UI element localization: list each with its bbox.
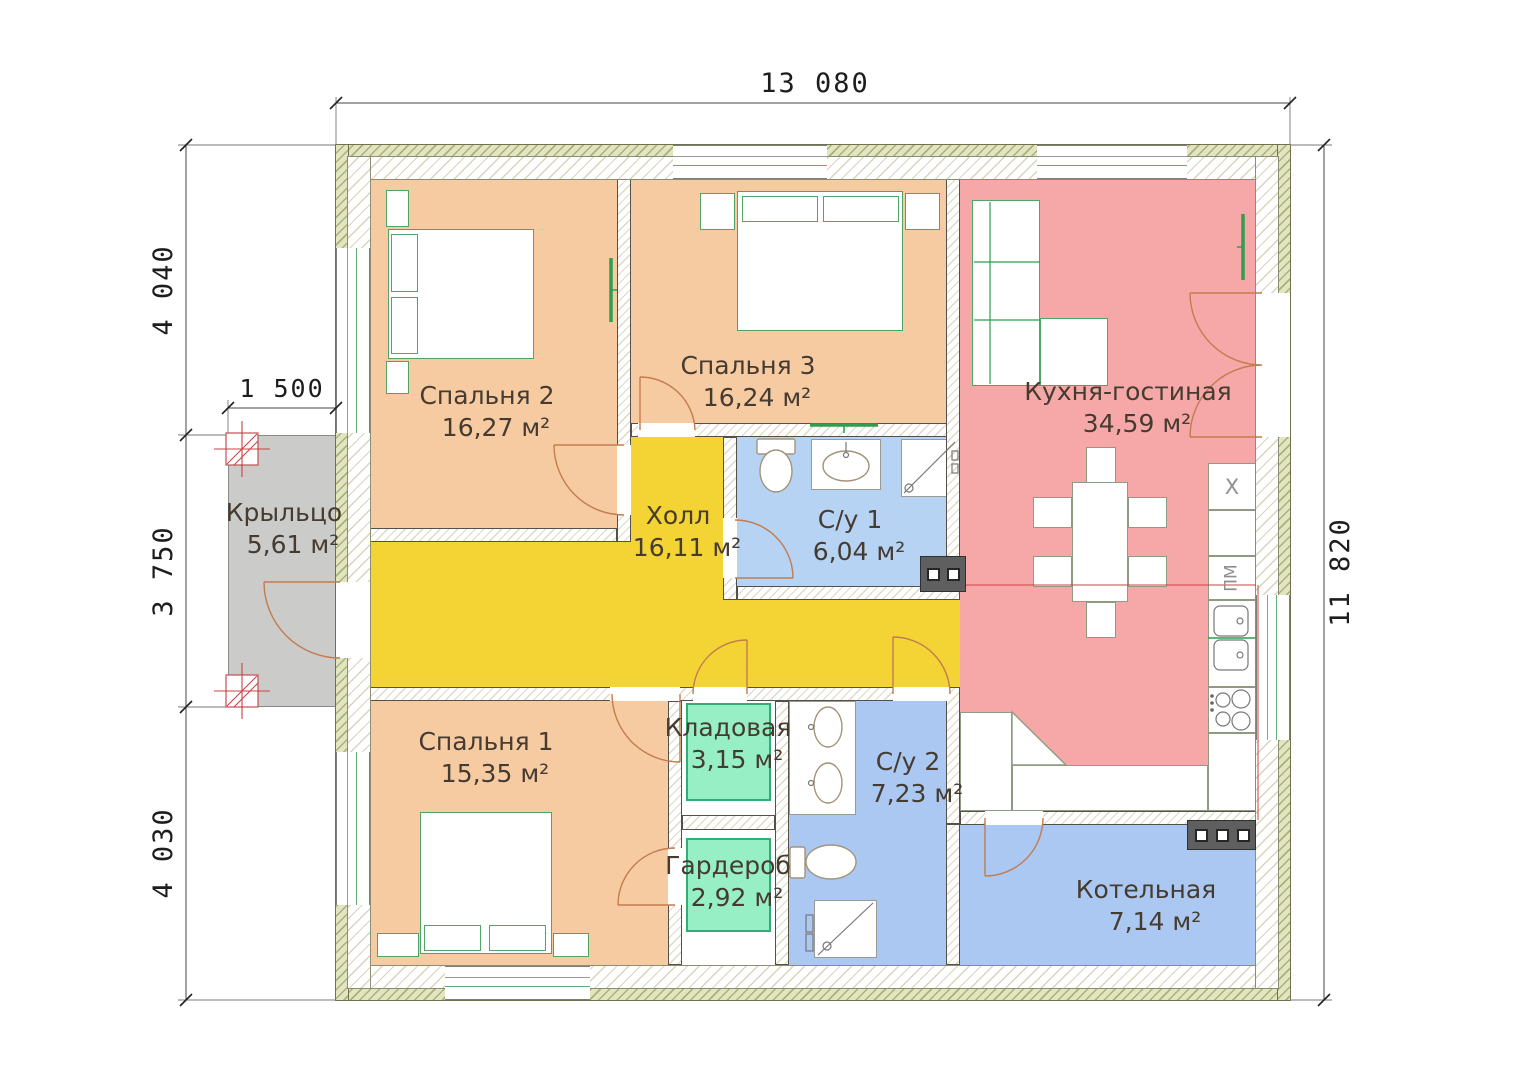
room-area: 16,24 м² — [703, 382, 811, 414]
shower-detail-bathroom1 — [904, 442, 958, 493]
room-area: 16,11 м² — [633, 532, 741, 564]
room-name: С/у 1 — [760, 504, 940, 536]
toilet-bathroom1 — [757, 439, 795, 492]
room-name: Крыльцо — [194, 497, 374, 529]
dimension-label-right-height: 11 820 — [1325, 499, 1355, 645]
fridge-label: Х — [1208, 463, 1256, 510]
room-area: 6,04 м² — [813, 536, 906, 568]
sink-bathroom1 — [823, 442, 869, 481]
fridge-label-text: Х — [1225, 475, 1239, 499]
room-label-bedroom1: Спальня 1 15,35 м² — [366, 726, 606, 790]
radiator-bathroom1-icon — [810, 425, 878, 433]
door-bathroom2 — [893, 637, 950, 694]
electrical-panel-box — [1187, 820, 1256, 850]
room-name: Котельная — [1056, 874, 1236, 906]
room-name: Гардероб — [638, 850, 818, 882]
tv-bedroom2-icon — [611, 258, 617, 322]
room-label-pantry: Кладовая 3,15 м² — [638, 712, 818, 776]
room-name: Спальня 1 — [366, 726, 606, 758]
room-area: 16,27 м² — [442, 412, 550, 444]
kitchen-double-sink — [1208, 606, 1256, 670]
tv-kitchen-icon — [1237, 214, 1243, 280]
floor-plan: Х ПМ Спальня 2 16,27 м² Спальня 3 16,24 … — [0, 0, 1528, 1080]
porch-column — [214, 663, 270, 719]
kitchen-counter-wedge — [1012, 712, 1066, 765]
door-entrance — [264, 582, 340, 658]
room-area: 7,23 м² — [871, 778, 964, 810]
room-area: 15,35 м² — [441, 758, 549, 790]
room-area: 7,14 м² — [1109, 906, 1202, 938]
room-label-bedroom2: Спальня 2 16,27 м² — [367, 380, 607, 444]
room-area: 5,61 м² — [247, 529, 340, 561]
room-name: Спальня 2 — [367, 380, 607, 412]
room-label-wardrobe: Гардероб 2,92 м² — [638, 850, 818, 914]
room-name: Холл — [608, 500, 748, 532]
dimension-label-left-lower: 4 030 — [148, 793, 178, 913]
room-label-porch: Крыльцо 5,61 м² — [194, 497, 374, 561]
porch-column — [214, 421, 270, 477]
room-area: 2,92 м² — [691, 882, 784, 914]
cooktop — [1210, 690, 1250, 730]
room-area: 3,15 м² — [691, 744, 784, 776]
room-name: С/у 2 — [818, 746, 998, 778]
room-area: 34,59 м² — [1083, 408, 1191, 440]
room-label-bathroom2: С/у 2 7,23 м² — [818, 746, 998, 810]
room-name: Спальня 3 — [628, 350, 868, 382]
sofa-cushion-lines — [974, 202, 1040, 384]
room-label-kitchen-living: Кухня-гостиная 34,59 м² — [1008, 376, 1248, 440]
door-pantry — [693, 640, 747, 694]
room-label-bathroom1: С/у 1 6,04 м² — [760, 504, 940, 568]
dimension-label-porch-width: 1 500 — [222, 374, 342, 403]
room-label-bedroom3: Спальня 3 16,24 м² — [628, 350, 868, 414]
dishwasher-label: ПМ — [1208, 556, 1256, 600]
room-label-boiler-room: Котельная 7,14 м² — [1056, 874, 1236, 938]
dimension-label-left-middle: 3 750 — [148, 511, 178, 631]
dishwasher-label-text: ПМ — [1222, 564, 1242, 591]
dimension-label-left-upper: 4 040 — [148, 230, 178, 350]
room-name: Кладовая — [638, 712, 818, 744]
room-name: Кухня-гостиная — [1008, 376, 1248, 408]
dimension-label-top-width: 13 080 — [700, 68, 930, 99]
room-label-hall: Холл 16,11 м² — [608, 500, 748, 564]
door-boiler — [985, 818, 1043, 876]
